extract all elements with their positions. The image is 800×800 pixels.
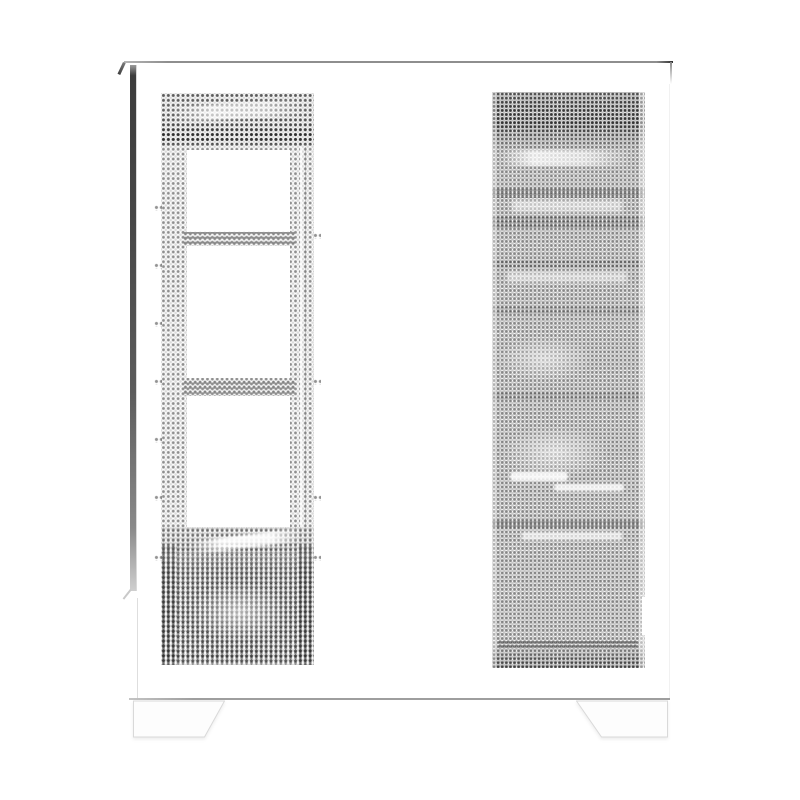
case-left-edge-shadow: [130, 65, 136, 591]
case-right-edge: [669, 84, 670, 698]
internals-reflection-3: [507, 272, 627, 282]
internals-light-patch-1: [497, 336, 592, 382]
mesh-clip-notch: [154, 321, 162, 327]
case-left-lower-edge: [137, 598, 138, 699]
white-cable-silhouette-1: [510, 472, 568, 481]
mesh-clip-notch: [154, 555, 162, 561]
internals-bottom-shade: [492, 648, 645, 668]
panel-seam-highlight: [300, 147, 302, 527]
psu-vent-reflection: [189, 581, 289, 643]
white-cable-silhouette-2: [554, 484, 624, 491]
mesh-clip-notch: [154, 205, 162, 211]
mesh-clip-notch: [313, 555, 321, 561]
mesh-clip-notch: [313, 495, 321, 501]
case-top-left-chamfer: [118, 62, 126, 75]
internals-band-6: [492, 520, 645, 529]
mesh-right-edge-notch: [642, 597, 647, 635]
case-foot-left: [133, 700, 225, 738]
fan-cutout-2: [187, 246, 290, 378]
case-right-edge-tick: [670, 62, 672, 84]
internals-band-1: [492, 188, 645, 198]
internals-band-5: [492, 392, 645, 400]
internals-band-4: [492, 306, 645, 314]
mesh-clip-notch: [154, 495, 162, 501]
product-photo-stage: [0, 0, 800, 800]
mesh-clip-notch: [154, 437, 162, 443]
mesh-divider-band-2: [183, 380, 295, 396]
mesh-left-edge-highlight: [492, 92, 496, 668]
mesh-clip-notch: [154, 263, 162, 269]
mesh-clip-notch: [154, 379, 162, 385]
psu-vent-left-shade: [161, 545, 177, 665]
psu-vent-right-shade: [298, 545, 314, 665]
internals-reflection-4: [522, 532, 622, 540]
fan-cutout-3: [187, 396, 290, 527]
internals-top-shade: [492, 92, 645, 150]
case-top-edge: [124, 61, 673, 63]
rear-mesh-panel: [492, 92, 645, 668]
internals-band-3: [492, 260, 645, 268]
panel-seam-line: [305, 147, 306, 527]
mesh-clip-notch: [313, 233, 321, 239]
mesh-divider-band-1: [183, 231, 295, 246]
internals-light-patch-2: [502, 426, 607, 478]
internals-reflection-1: [500, 150, 632, 166]
mesh-clip-notch: [313, 379, 321, 385]
case-foot-right: [576, 700, 668, 738]
case-left-edge-tick: [123, 589, 132, 600]
side-mesh-panel: [161, 93, 314, 665]
fan-cutout-1: [187, 150, 290, 232]
internals-reflection-2: [512, 200, 622, 212]
mesh-right-edge-highlight: [639, 92, 645, 668]
internals-band-2: [492, 216, 645, 228]
